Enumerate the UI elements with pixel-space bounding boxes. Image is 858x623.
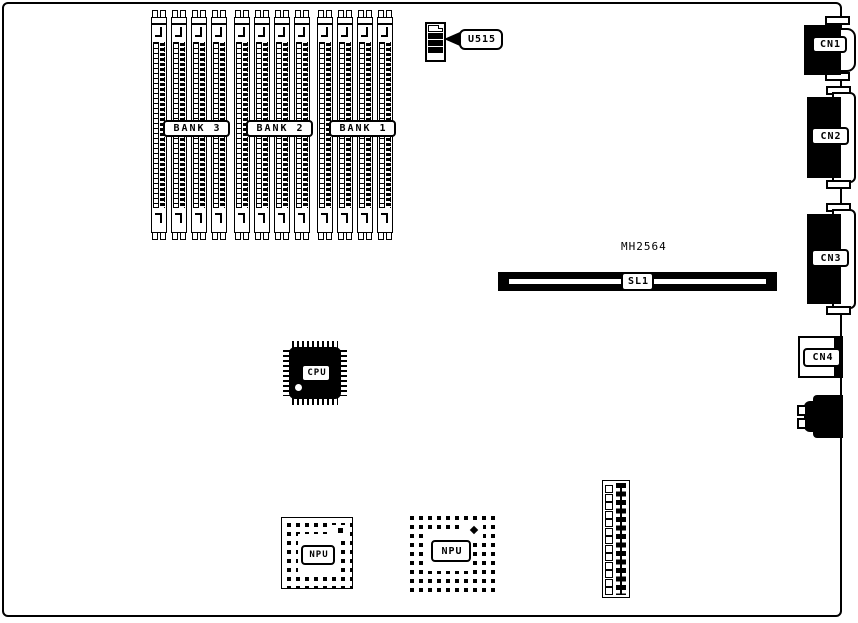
slot-tab [346, 232, 352, 240]
bank-label: BANK 3 [163, 120, 230, 137]
pin-square [605, 545, 613, 553]
slot-tab [303, 232, 309, 240]
npu-pin1-dot [338, 528, 343, 533]
slot-tab [172, 232, 178, 240]
cn1-connector: CN1 [804, 16, 858, 81]
slot-tab [366, 232, 372, 240]
mounting-tab [826, 306, 851, 315]
slot-tab [235, 232, 241, 240]
slot-bar [317, 23, 333, 25]
u515-label: U515 [459, 29, 503, 50]
sl1-label: SL1 [621, 272, 654, 291]
motherboard-diagram: BANK 3BANK 2BANK 1 U515 CN1 CN2 CN3 CN4 [0, 0, 858, 623]
slot-tab [358, 232, 364, 240]
slot-bar [357, 23, 373, 25]
pin-square [605, 579, 613, 587]
slot-tab [152, 232, 158, 240]
slot-bar [211, 23, 227, 25]
pin-square [605, 485, 613, 493]
cn1-label: CN1 [812, 36, 847, 53]
slot-tab [220, 232, 226, 240]
slot-latch [215, 27, 222, 37]
cpu-pin1-dot [295, 384, 302, 391]
cn4-connector: CN4 [798, 336, 843, 378]
mounting-tab [825, 16, 850, 25]
slot-latch [381, 213, 388, 223]
pin-square [605, 536, 613, 544]
cn3-connector: CN3 [806, 203, 858, 315]
slot-latch [195, 27, 202, 37]
slot-latch [278, 213, 285, 223]
slot-bar [274, 23, 290, 25]
npu-right-label: NPU [431, 540, 471, 562]
pin-square [605, 562, 613, 570]
bank-label: BANK 2 [246, 120, 313, 137]
slot-latch [155, 213, 162, 223]
slot-latch [215, 213, 222, 223]
slot-bar [171, 23, 187, 25]
slot-tab [295, 232, 301, 240]
slot-bar [337, 23, 353, 25]
slot-latch [238, 27, 245, 37]
pin-square [605, 494, 613, 502]
slot-tab [386, 232, 392, 240]
slot-tab [275, 232, 281, 240]
contact-column [153, 42, 159, 208]
audio-jack-connector [797, 393, 843, 440]
u515-chip-cell [428, 47, 443, 53]
slot-tab [243, 232, 249, 240]
slot-latch [278, 27, 285, 37]
jack-pin [797, 405, 807, 416]
memory-banks: BANK 3BANK 2BANK 1 [150, 10, 398, 240]
slot-latch [321, 213, 328, 223]
slot-latch [298, 213, 305, 223]
u515-chip-cell [428, 33, 443, 39]
slot-latch [341, 213, 348, 223]
pin-header-connector [602, 480, 630, 598]
slot-tab [338, 232, 344, 240]
jack-base [813, 395, 843, 438]
sl1-part-number: MH2564 [621, 240, 667, 253]
slot-bar [254, 23, 270, 25]
u515-chip-pin1-cell [428, 25, 443, 32]
slot-bar [234, 23, 250, 25]
pin-square [605, 519, 613, 527]
npu-socket-right: NPU [405, 511, 497, 593]
callout-arrow-icon [444, 32, 460, 46]
pin-square [605, 553, 613, 561]
slot-tab [378, 232, 384, 240]
cn2-connector: CN2 [806, 86, 858, 189]
pin-square [605, 587, 613, 595]
slot-bar [294, 23, 310, 25]
cn4-label: CN4 [803, 348, 841, 367]
u515-chip-cell [428, 40, 443, 46]
slot-tab [326, 232, 332, 240]
sl1-slot: SL1 [498, 272, 777, 291]
slot-latch [175, 27, 182, 37]
slot-latch [341, 27, 348, 37]
slot-bar [377, 23, 393, 25]
slot-latch [195, 213, 202, 223]
slot-tab [180, 232, 186, 240]
slot-latch [321, 27, 328, 37]
bank-label: BANK 1 [329, 120, 396, 137]
pin-square [605, 528, 613, 536]
slot-latch [381, 27, 388, 37]
slot-latch [361, 213, 368, 223]
slot-bar [151, 23, 167, 25]
slot-tab [283, 232, 289, 240]
cn3-label: CN3 [811, 249, 849, 267]
slot-bar [191, 23, 207, 25]
slot-latch [298, 27, 305, 37]
npu-left-label: NPU [301, 545, 335, 565]
pin-square [605, 511, 613, 519]
slot-tab [212, 232, 218, 240]
slot-latch [238, 213, 245, 223]
slot-tab [200, 232, 206, 240]
slot-tab [160, 232, 166, 240]
slot-latch [155, 27, 162, 37]
slot-latch [361, 27, 368, 37]
u515-chip [425, 22, 446, 62]
cpu-label: CPU [301, 364, 331, 382]
pin-square [605, 502, 613, 510]
npu-socket-left: NPU [281, 517, 353, 589]
slot-latch [258, 213, 265, 223]
slot-tab [255, 232, 261, 240]
slot-latch [175, 213, 182, 223]
jack-pin [797, 418, 807, 429]
slot-tab [192, 232, 198, 240]
slot-latch [258, 27, 265, 37]
contact-column [236, 42, 242, 208]
cpu-chip: CPU [283, 341, 347, 405]
slot-tab [263, 232, 269, 240]
slot-tab [318, 232, 324, 240]
mounting-tab [826, 180, 851, 189]
cpu-pins-bottom [292, 398, 338, 405]
cn2-label: CN2 [811, 127, 849, 145]
contact-column [319, 42, 325, 208]
pin-square [605, 570, 613, 578]
pin-column [622, 483, 626, 595]
cpu-pins-right [340, 350, 347, 396]
pin-header-right-column [616, 483, 627, 595]
